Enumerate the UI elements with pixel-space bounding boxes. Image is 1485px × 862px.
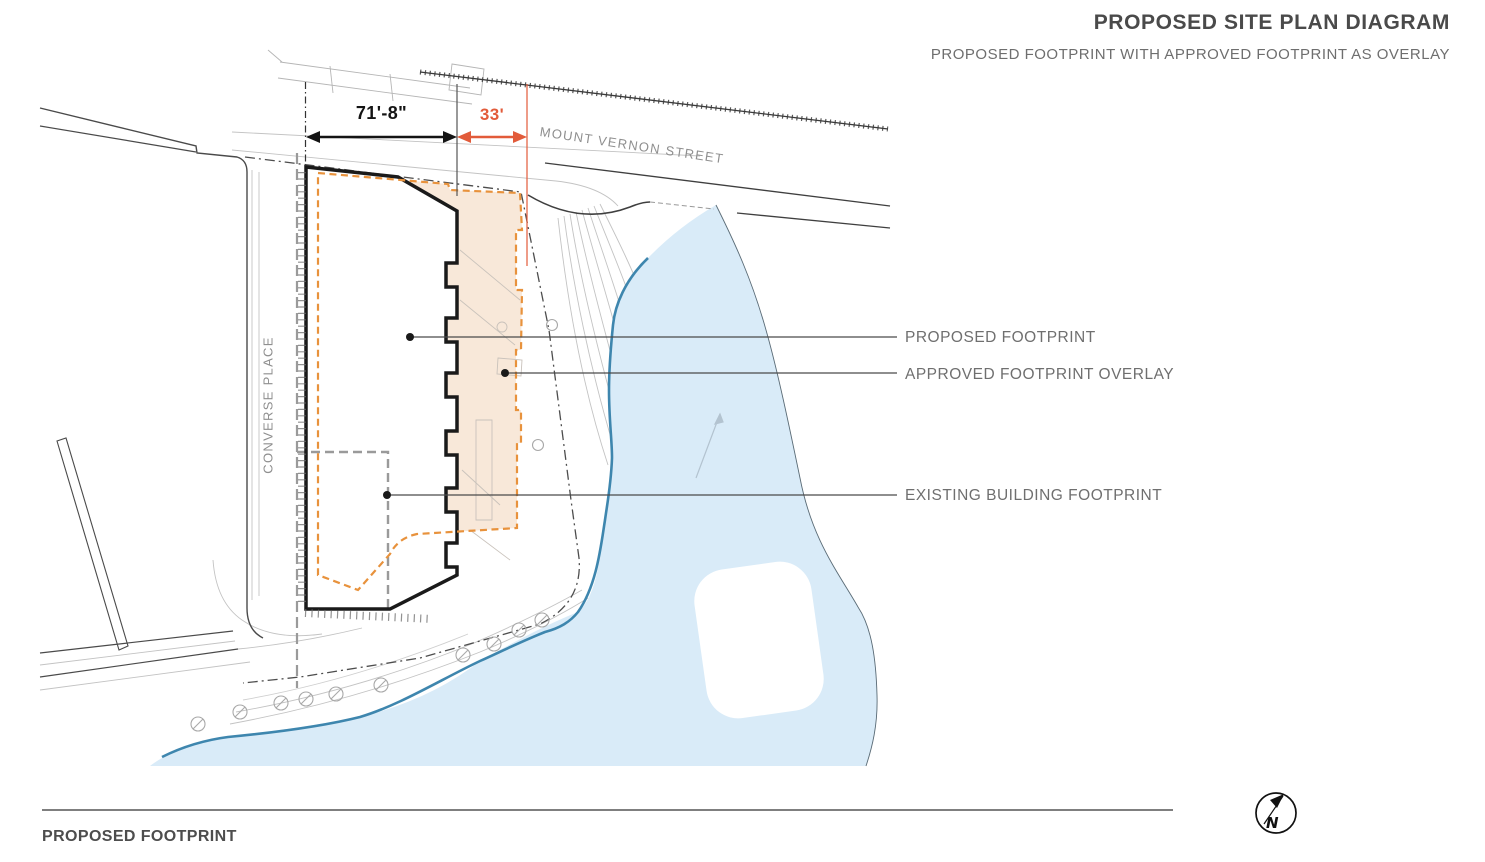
- dimension-71-8: [306, 131, 457, 143]
- proposed-footprint-fill: [306, 167, 457, 609]
- water-island-blob: [690, 558, 828, 723]
- north-arrow-icon: N: [1256, 793, 1296, 833]
- dimension-33: [457, 131, 527, 143]
- site-plan-drawing: N: [0, 0, 1485, 862]
- dimension-label-proposed-width: 71'-8": [306, 103, 457, 124]
- page-title: PROPOSED SITE PLAN DIAGRAM: [1094, 11, 1450, 35]
- legend-label-existing: EXISTING BUILDING FOOTPRINT: [905, 487, 1162, 505]
- dimension-label-approved-extension: 33': [457, 105, 527, 125]
- street-label-converse-place: CONVERSE PLACE: [261, 336, 276, 473]
- page-subtitle: PROPOSED FOOTPRINT WITH APPROVED FOOTPRI…: [931, 46, 1450, 63]
- converse-place-lines: [40, 108, 263, 638]
- legend-label-approved: APPROVED FOOTPRINT OVERLAY: [905, 366, 1174, 384]
- legend-label-proposed: PROPOSED FOOTPRINT: [905, 329, 1096, 347]
- north-label: N: [1266, 814, 1279, 832]
- footer-caption: PROPOSED FOOTPRINT: [42, 828, 237, 846]
- bottom-left-structures: [40, 438, 238, 677]
